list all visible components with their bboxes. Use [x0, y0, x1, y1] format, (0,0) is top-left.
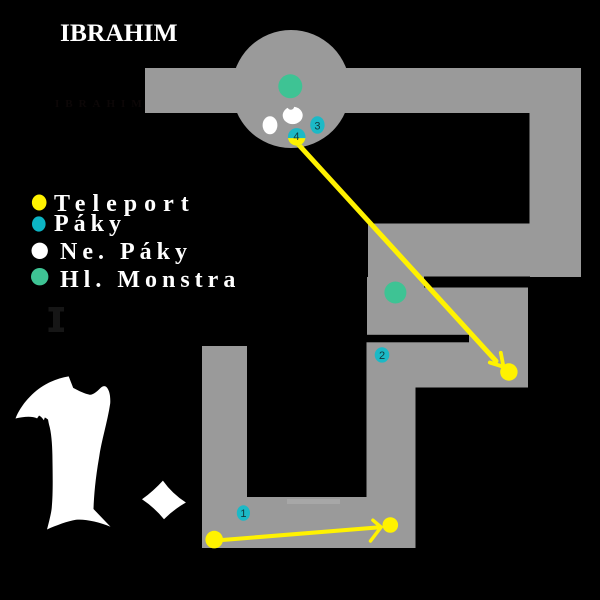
- svg-text:2: 2: [379, 350, 385, 362]
- svg-text:Ne. Páky: Ne. Páky: [60, 239, 192, 265]
- svg-text:IBRAHIM: IBRAHIM: [55, 98, 148, 110]
- svg-text:Hl. Monstra: Hl. Monstra: [60, 267, 240, 293]
- svg-text:IBRAHIM: IBRAHIM: [60, 18, 178, 47]
- svg-text:Páky: Páky: [54, 211, 126, 237]
- svg-text:1: 1: [240, 508, 246, 520]
- svg-text:3: 3: [314, 121, 320, 133]
- svg-text:4: 4: [293, 131, 299, 143]
